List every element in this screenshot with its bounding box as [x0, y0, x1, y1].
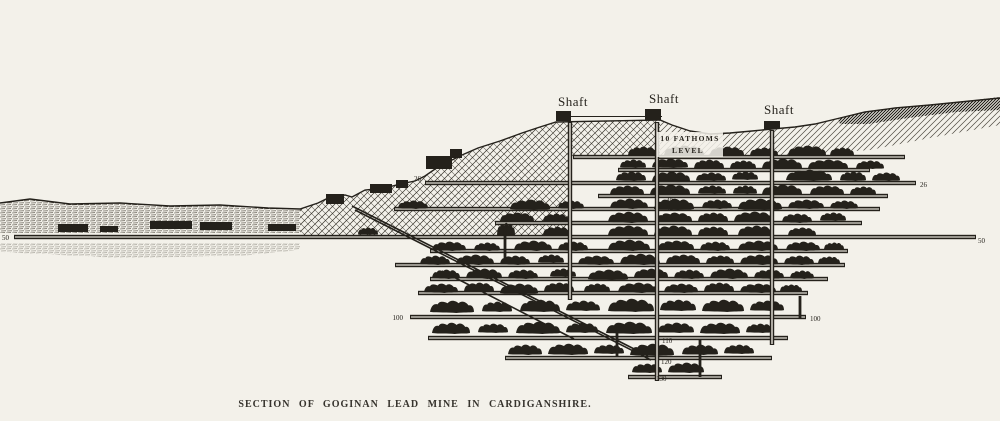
- stope-blob: [594, 345, 624, 354]
- stope-blob: [724, 345, 754, 354]
- depth-label: 100: [393, 314, 404, 322]
- stope-blob: [508, 345, 542, 355]
- shaft-1-label: Shaft: [558, 94, 588, 109]
- stope-blob: [584, 284, 610, 292]
- stope-blob: [738, 226, 774, 236]
- surface-building: [370, 184, 392, 193]
- stope-blob: [710, 269, 748, 279]
- stope-blob: [856, 161, 884, 169]
- shaft-3-label: Shaft: [764, 102, 794, 117]
- stope-blob: [850, 187, 876, 195]
- stope-blob: [872, 173, 900, 181]
- stope-blob: [654, 199, 694, 210]
- shaft-2-label: Shaft: [649, 91, 679, 106]
- surface-building: [200, 222, 232, 230]
- stope-blob: [634, 269, 668, 278]
- stope-blob: [478, 324, 508, 333]
- stope-blob: [548, 344, 588, 355]
- depth-label: 110: [662, 337, 673, 345]
- stope-blob: [664, 284, 698, 293]
- stope-blob: [608, 226, 648, 236]
- shaft-1-gap: [569, 123, 570, 299]
- level-gallery-gap: [506, 357, 771, 358]
- stope-blob: [618, 283, 658, 293]
- stope-blob: [706, 256, 734, 264]
- stope-blob: [700, 323, 740, 334]
- depth-label: 16: [663, 161, 671, 169]
- surface-building: [450, 149, 462, 158]
- stope-blob: [782, 214, 812, 223]
- stope-blob: [432, 270, 460, 279]
- stope-blob: [620, 254, 660, 265]
- stope-blob: [666, 255, 700, 264]
- depth-label: 130: [656, 375, 667, 383]
- surface-building: [150, 221, 192, 229]
- stope-blob: [654, 226, 692, 236]
- surface-building: [556, 111, 571, 121]
- depth-label: 42: [666, 204, 674, 212]
- level-gallery-gap: [574, 156, 904, 157]
- figure-caption: SECTION OF GOGINAN LEAD MINE IN CARDIGAN…: [0, 399, 830, 410]
- depth-label: 26: [414, 175, 422, 183]
- stope-blob: [474, 243, 500, 251]
- stope-blob: [660, 300, 696, 311]
- depth-label: 100: [810, 315, 821, 323]
- stope-blob: [788, 228, 816, 236]
- stope-blob: [696, 173, 726, 181]
- stope-blob: [656, 213, 692, 222]
- depth-label: 50: [2, 234, 10, 242]
- stope-blob: [578, 256, 614, 265]
- depth-label: 26: [920, 181, 928, 189]
- winze-line: [504, 226, 507, 262]
- stope-blob: [808, 160, 848, 169]
- stope-blob: [700, 242, 730, 251]
- stope-blob: [608, 240, 650, 251]
- stope-blob: [658, 323, 694, 333]
- stope-blob: [698, 213, 728, 222]
- stope-blob: [730, 161, 756, 169]
- stope-blob: [432, 323, 470, 334]
- stope-blob: [608, 299, 654, 312]
- depth-label: 50: [978, 237, 986, 245]
- surface-building: [100, 226, 118, 232]
- shaft-2-gap: [656, 123, 657, 380]
- stope-blob: [788, 200, 824, 209]
- stope-blob: [610, 186, 644, 195]
- stope-blob: [824, 242, 844, 250]
- surface-building: [645, 109, 661, 120]
- stope-blob: [733, 186, 757, 194]
- stope-blob: [698, 227, 728, 236]
- level-gallery-gap: [599, 195, 887, 196]
- stope-blob: [732, 172, 758, 180]
- stope-blob: [704, 283, 734, 292]
- stope-blob: [702, 300, 744, 312]
- surface-building: [58, 224, 88, 232]
- stope-blob: [830, 201, 858, 209]
- fathoms-level-label-line1: 10 FATHOMS: [660, 134, 719, 143]
- surface-building: [268, 224, 296, 231]
- stope-blob: [620, 160, 646, 168]
- stope-blob: [674, 270, 704, 279]
- stope-blob: [566, 301, 600, 311]
- engraving-page: Shaft Shaft Shaft 10 FATHOMS LEVEL 26265…: [0, 0, 1000, 421]
- stope-blob: [508, 270, 538, 279]
- mine-section-engraving: Shaft Shaft Shaft 10 FATHOMS LEVEL 26265…: [0, 0, 1000, 421]
- stope-blob: [750, 301, 784, 311]
- stope-blob: [694, 160, 724, 169]
- level-gallery-gap: [411, 316, 805, 317]
- stope-blob: [566, 323, 598, 333]
- stope-blob: [520, 300, 560, 312]
- hill-hatch: [300, 120, 660, 237]
- stope-blob: [840, 172, 866, 181]
- surface-building: [326, 194, 344, 204]
- stope-blob: [780, 284, 802, 292]
- stope-blob: [762, 159, 802, 169]
- stope-blob: [810, 186, 844, 195]
- stope-blob: [702, 200, 732, 209]
- stope-blob: [790, 271, 814, 279]
- stope-blob: [658, 241, 694, 250]
- stope-blob: [698, 186, 726, 194]
- stope-blob: [786, 242, 820, 251]
- stope-blob: [762, 185, 802, 195]
- winze-line: [799, 296, 802, 318]
- stope-blob: [588, 270, 628, 280]
- surface-building: [426, 156, 452, 169]
- level-gallery-gap: [426, 182, 915, 183]
- stope-blob: [558, 242, 588, 251]
- stope-blob: [456, 255, 494, 265]
- fathoms-level-label-line2: LEVEL: [672, 146, 704, 155]
- stope-blob: [500, 284, 538, 294]
- stope-blob: [754, 270, 784, 279]
- stope-blob: [430, 301, 474, 313]
- stope-blob: [432, 242, 466, 251]
- stope-blob: [738, 199, 782, 210]
- stope-blob: [630, 344, 674, 356]
- winze-line: [616, 332, 619, 357]
- stope-blob: [606, 322, 652, 334]
- surface-building: [396, 180, 408, 188]
- stope-blob: [616, 172, 646, 181]
- stope-blob: [608, 212, 648, 223]
- stope-blob: [514, 241, 552, 251]
- left-valley-underadit-hatch: [0, 243, 300, 258]
- stope-blob: [818, 256, 840, 264]
- stope-blob: [610, 199, 648, 209]
- stope-blob: [420, 256, 450, 265]
- shaft-3-gap: [771, 131, 772, 344]
- stope-blob: [820, 213, 846, 221]
- stope-blob: [784, 256, 814, 265]
- level-gallery-gap: [629, 376, 721, 377]
- depth-label: 120: [661, 358, 672, 366]
- stope-blob: [538, 255, 564, 263]
- stope-blob: [466, 269, 502, 279]
- stope-blob: [424, 284, 458, 293]
- level-gallery-gap: [15, 236, 975, 237]
- winze-line: [699, 340, 702, 377]
- stope-blob: [516, 322, 560, 334]
- stope-blob: [482, 302, 512, 312]
- stope-blob: [734, 212, 774, 222]
- surface-building: [764, 121, 780, 129]
